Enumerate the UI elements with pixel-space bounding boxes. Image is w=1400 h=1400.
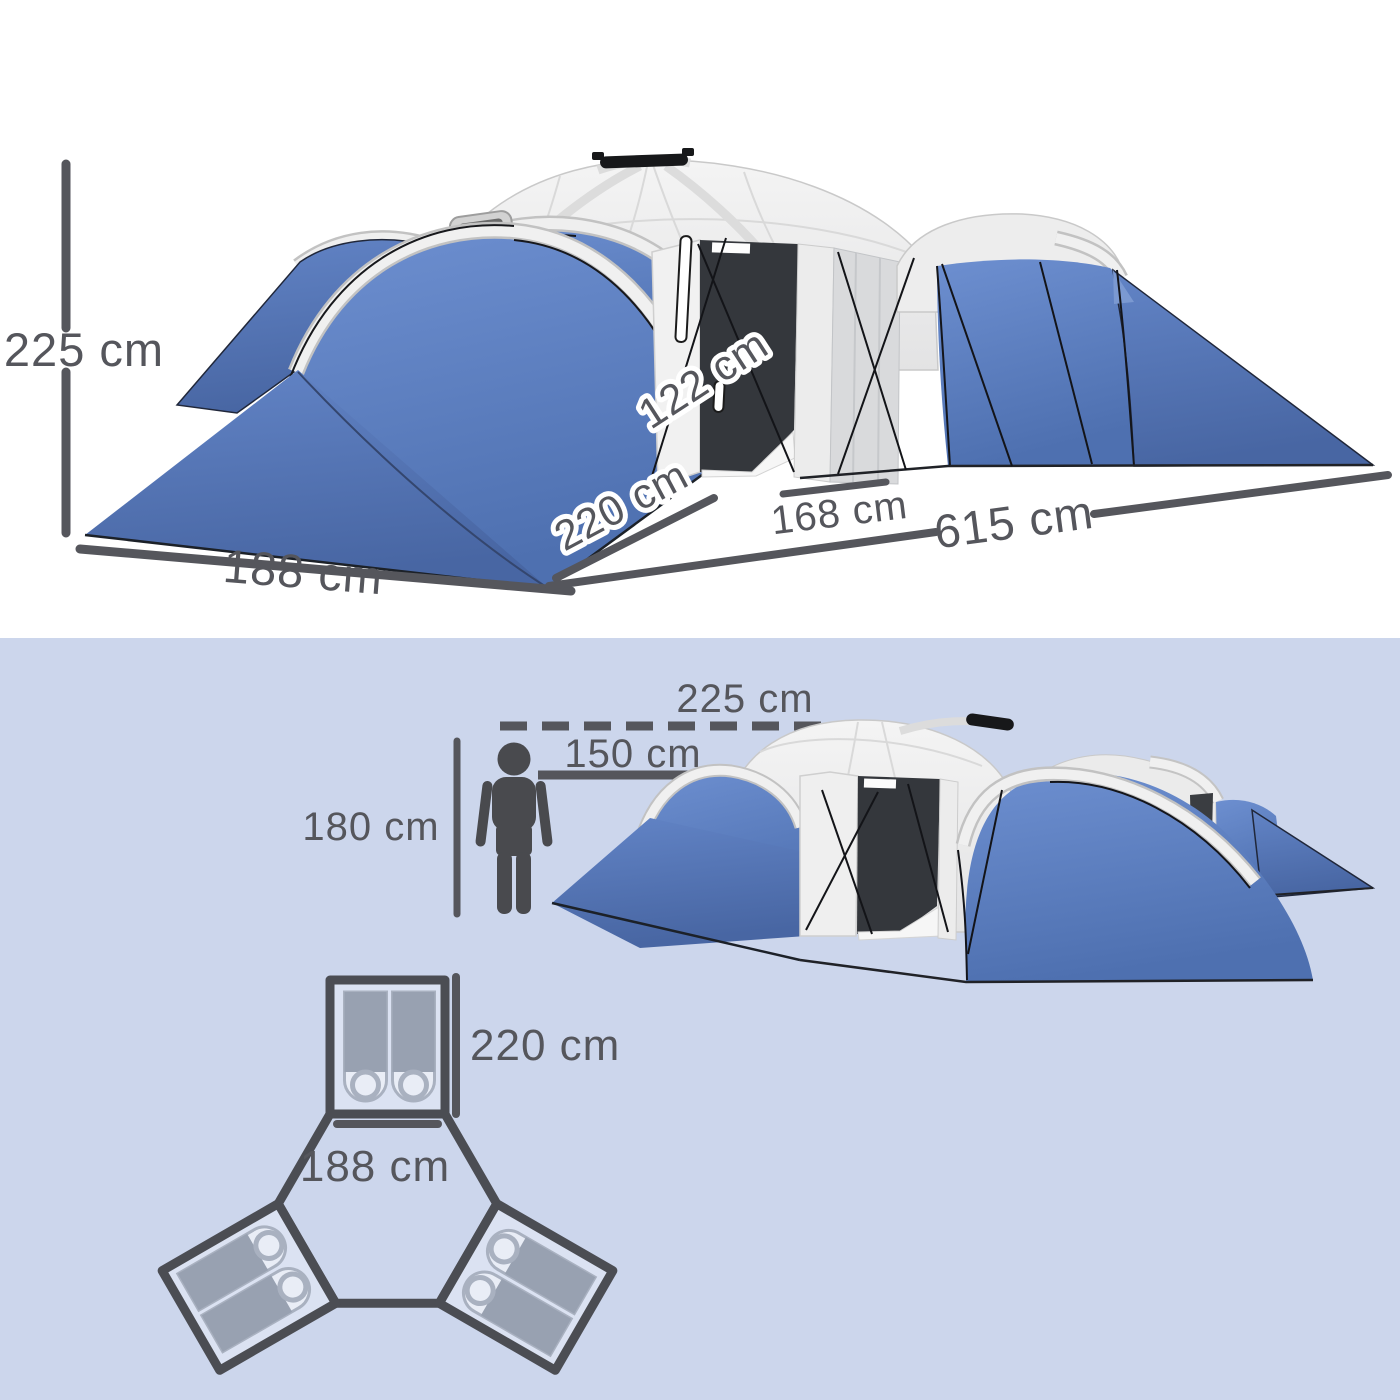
front-door-frame [938, 779, 958, 940]
front-door-flap [800, 772, 858, 936]
front-door-patch [864, 778, 896, 788]
door-label-patch [712, 242, 750, 253]
peak-bar [592, 148, 694, 169]
height-label: 225 cm [4, 323, 164, 376]
right-wing [1113, 270, 1373, 466]
inner-height-label: 150 cm [564, 732, 701, 776]
width-label: 188 cm [221, 539, 385, 604]
sleeping-room-top [330, 980, 445, 1114]
person-head [498, 743, 531, 776]
tent-dimension-sheet: 225 cm 188 cm 220 cm 168 cm 615 cm 122 c… [0, 0, 1400, 1400]
person-height-label: 180 cm [302, 805, 439, 849]
room-depth-label: 220 cm [470, 1021, 620, 1070]
diagram-canvas: 225 cm 188 cm 220 cm 168 cm 615 cm 122 c… [0, 0, 1400, 1400]
side-view-section: 225 cm 188 cm 220 cm 168 cm 615 cm 122 c… [4, 148, 1388, 604]
room-width-label: 188 cm [300, 1142, 450, 1191]
door-frame-right [794, 244, 834, 482]
mesh-panel [830, 248, 900, 484]
peak-height-label: 225 cm [676, 677, 813, 721]
right-dome [937, 259, 1134, 466]
length-label: 615 cm [931, 485, 1097, 558]
